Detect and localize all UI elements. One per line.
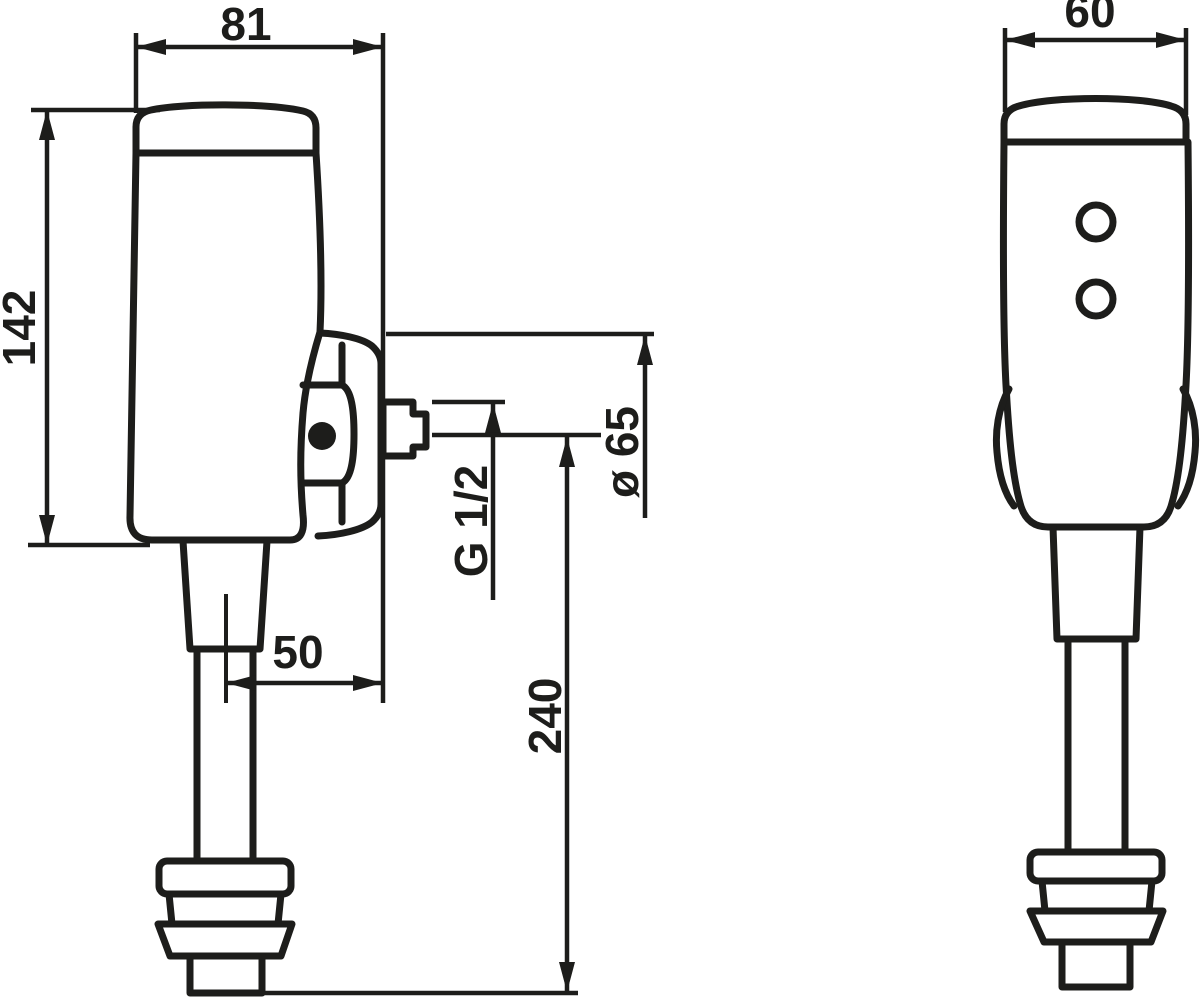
valve-body-front [996,99,1195,528]
front-coupling-cone [1030,911,1163,942]
sensor-upper-circle [1079,205,1113,239]
wall-coupling-side [158,861,292,993]
dim-81-arrow-left [136,39,166,55]
dim-60-arrow-right [1156,32,1186,48]
dim-g12-label: G 1/2 [445,465,497,578]
push-button-dot [308,422,336,450]
dim-81-label: 81 [220,0,271,50]
front-cap-outline [1004,99,1186,143]
body-outline [130,153,321,540]
front-view: 60 [996,0,1195,987]
dim-dia65-arrow [637,335,653,365]
flush-pipe-front [1053,527,1140,852]
dim-240-label: 240 [519,678,571,755]
dim-142-arrow-bottom [39,515,55,545]
sensor-lower-circle [1079,282,1113,316]
dim-60-label: 60 [1064,0,1115,37]
front-coupling-band [1042,881,1152,911]
dim-60-arrow-left [1005,32,1035,48]
dim-outlet-thread: G 1/2 [432,402,505,600]
wall-coupling-front [1030,852,1163,987]
coupling-cone [158,924,292,956]
dim-50-arrow-right [353,675,383,691]
dim-50-arrow-left [226,675,256,691]
coupling-band [169,894,281,924]
body-cap-outline [136,105,316,153]
boss-inner-curve [342,385,354,483]
front-body-outline [1003,142,1188,527]
coupling-flange [159,861,291,894]
technical-drawing: 81 142 50 G 1/2 [0,0,1200,998]
dim-dia65-label: ø 65 [596,406,648,498]
dim-240-arrow-bottom [559,962,575,992]
coupling-stub [190,956,262,993]
dim-240-arrow-top [559,437,575,467]
dim-g12-arrow [485,403,501,433]
outlet-spout-nipple [383,402,426,456]
dim-body-width: 81 [136,0,383,113]
flush-pipe-side [183,541,267,861]
dim-50-label: 50 [272,626,323,678]
dim-142-label: 142 [0,290,45,367]
front-coupling-flange [1030,852,1162,881]
dim-81-arrow-right [353,39,383,55]
front-coupling-stub [1062,942,1130,987]
dim-142-arrow-top [39,110,55,140]
drawing-canvas: 81 142 50 G 1/2 [0,0,1200,998]
front-pipe-sleeve [1053,527,1140,639]
side-view: 81 142 50 G 1/2 [0,0,654,993]
valve-body-side [130,105,321,540]
